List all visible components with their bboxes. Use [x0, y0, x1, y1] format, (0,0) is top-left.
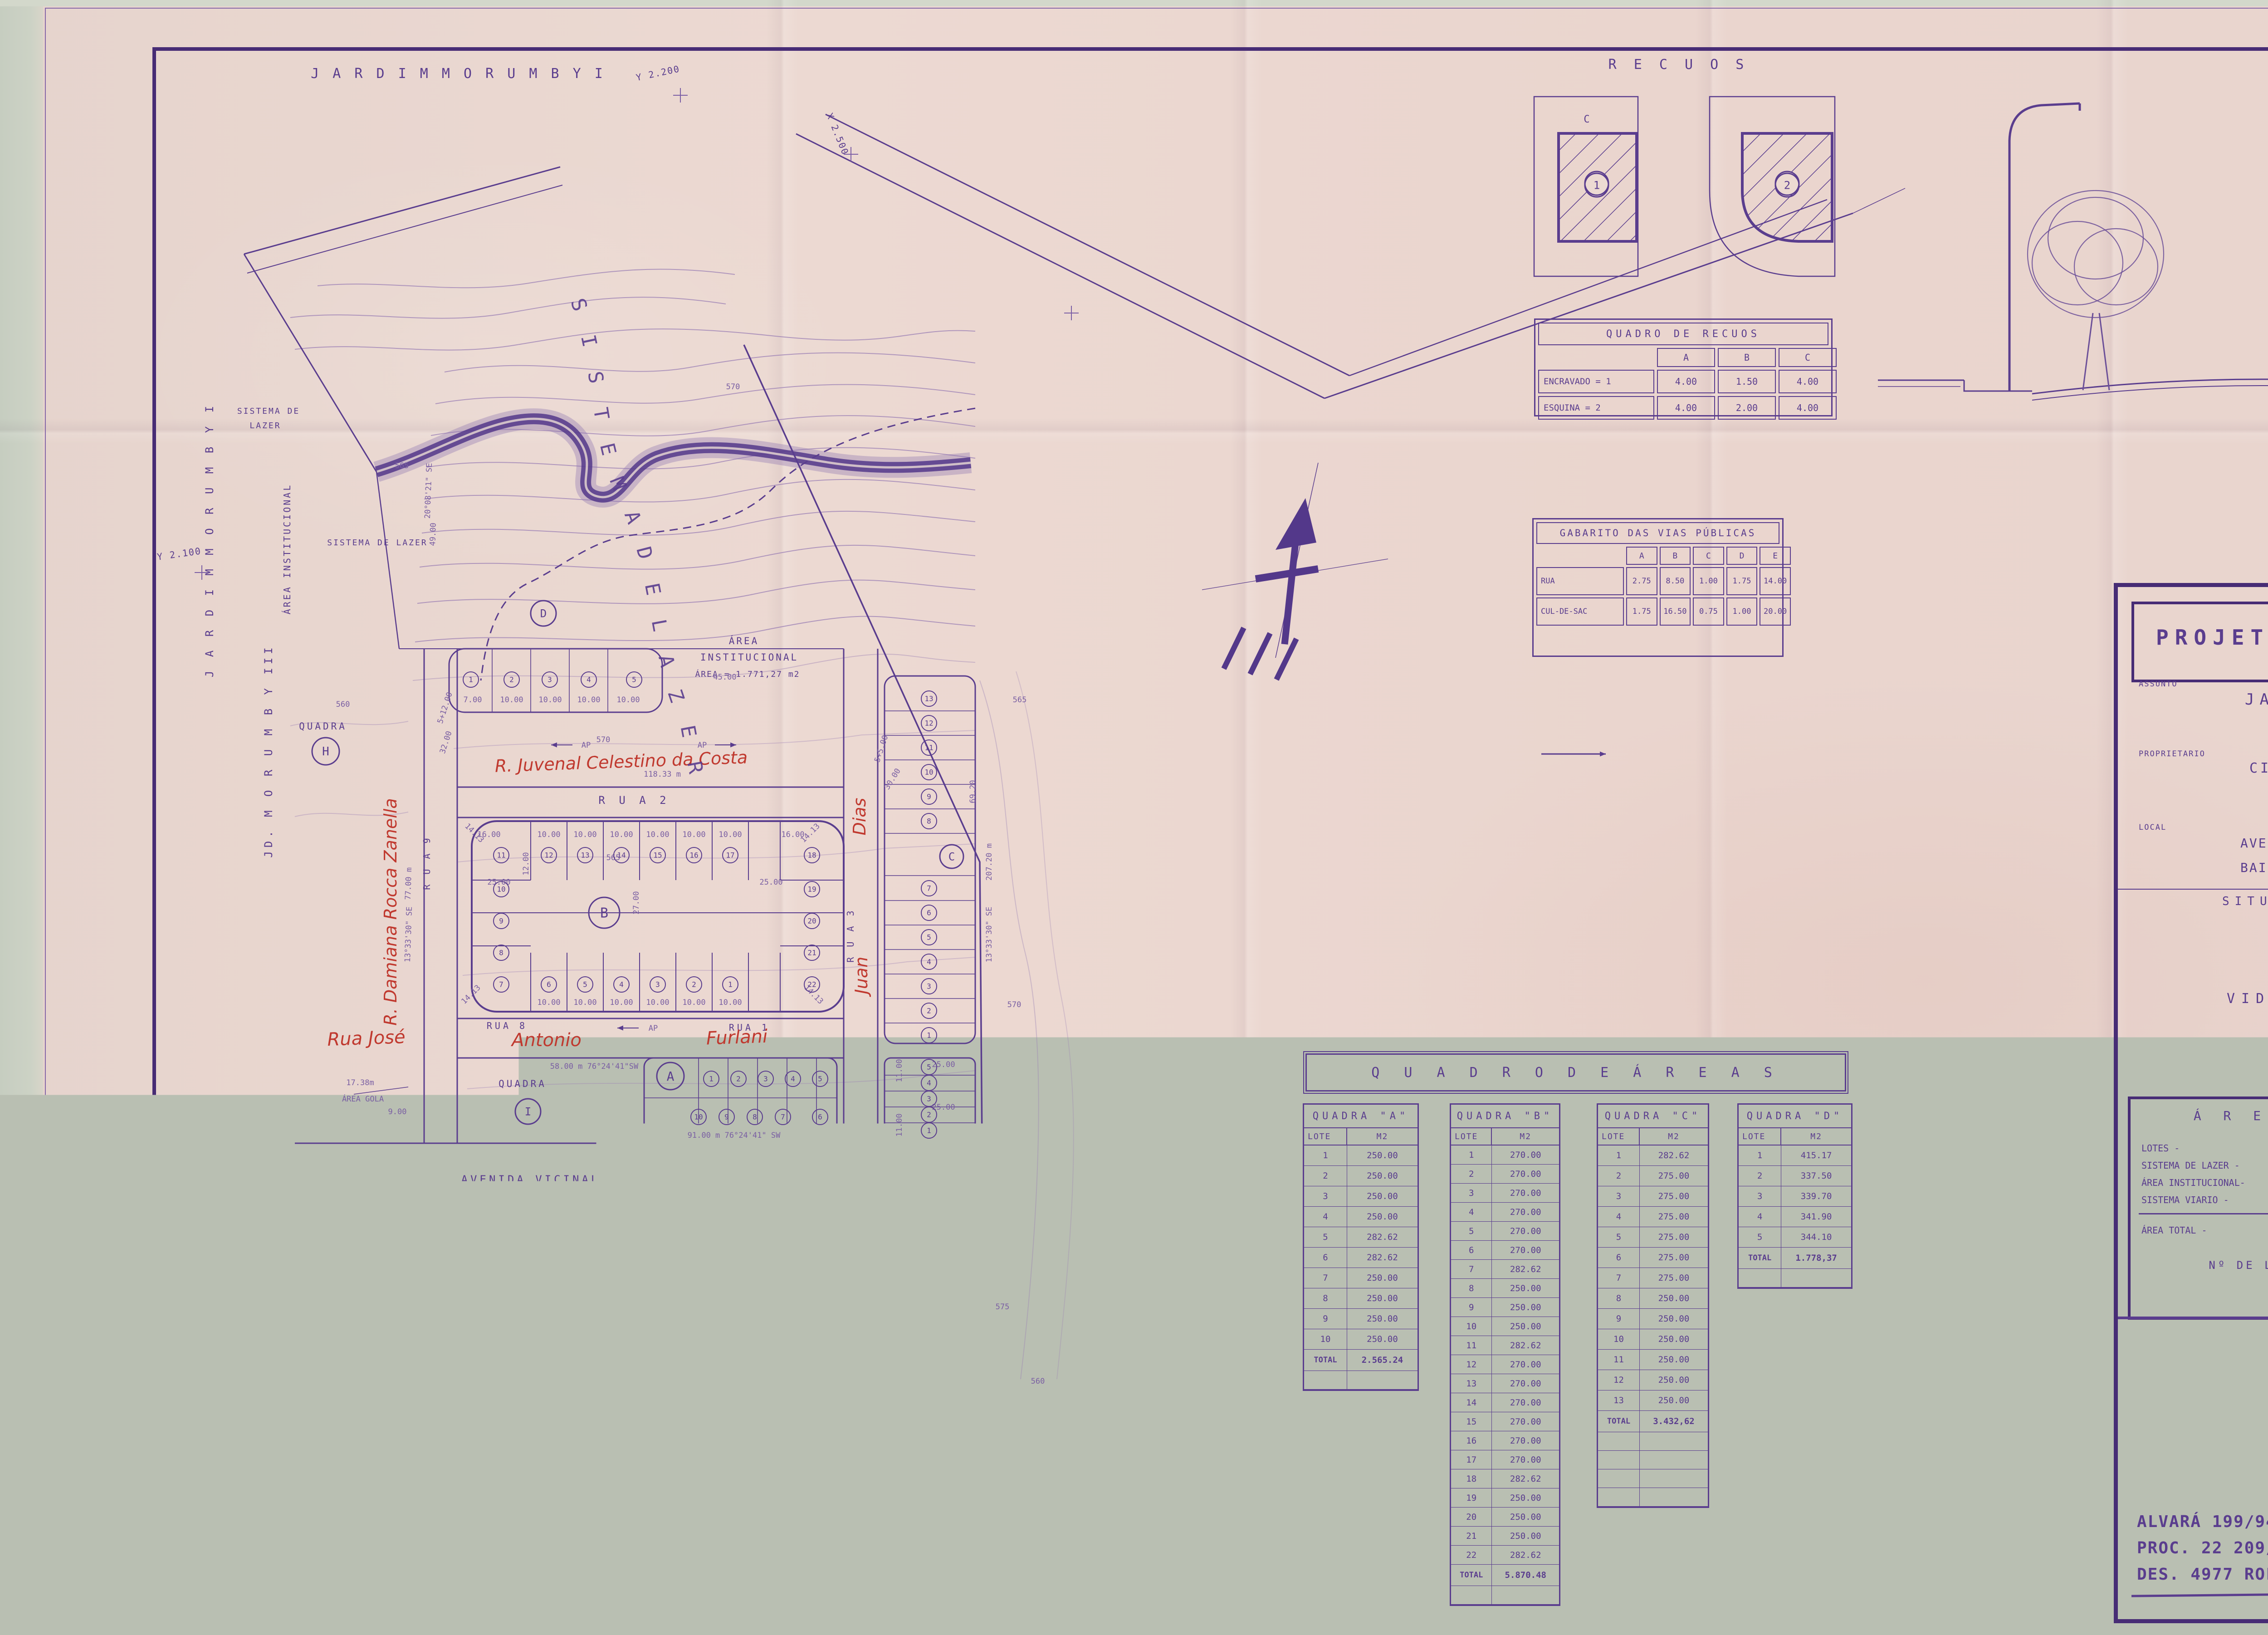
local-label: LOCAL	[2139, 823, 2166, 832]
recuos-row-label: ENCRAVADO = 1	[1538, 370, 1654, 393]
blank-row: ..	[1598, 1432, 1708, 1451]
dimension-label: 27.00	[632, 891, 641, 914]
lot-m2: 270.00	[1492, 1165, 1559, 1183]
handwritten-street-label: Dias	[850, 798, 870, 836]
dimension-label: 570	[1007, 1000, 1022, 1009]
ressumo-cell: A	[1816, 1384, 1884, 1421]
map-label: ÁREA	[729, 635, 759, 646]
lot-id: 3	[1451, 1184, 1492, 1202]
handwritten-street-label: R. Damiana Rocca Zanella	[381, 798, 401, 1025]
divider	[2118, 889, 2268, 890]
lot-number: 9	[724, 1113, 729, 1121]
alvara-line1: ALVARÁ 199/94 DUS	[2137, 1513, 2268, 1531]
arrow-head	[1600, 752, 1606, 757]
lot-id: 14	[1451, 1393, 1492, 1412]
lot-m2: 250.00	[1492, 1488, 1559, 1507]
dimension-label: 565	[1013, 695, 1027, 705]
bottom-rule	[2131, 1589, 2268, 1597]
gabarito-value: 1.75	[1726, 567, 1758, 595]
lot-id: 11	[1598, 1350, 1640, 1370]
lot-number: 11	[924, 744, 933, 752]
contour-lines	[290, 269, 1074, 1379]
dimension-label: 118.33 m	[644, 770, 681, 779]
situacao-value: VIDE AO LADO	[2227, 991, 2268, 1007]
lot-id: 6	[1451, 1241, 1492, 1259]
lot-number: 20	[807, 917, 816, 925]
map-label: RODOVIA CASTELO BRANCO	[1021, 1519, 1193, 1531]
lot-m2: 282.62	[1492, 1336, 1559, 1355]
lot-row: 16270.00	[1451, 1431, 1559, 1450]
lot-row: 5270.00	[1451, 1222, 1559, 1241]
recuos-col-header: B	[1718, 348, 1776, 367]
lot-number: 5	[583, 980, 587, 989]
map-label: B	[1714, 186, 1720, 198]
areas-total-row: ÁREA TOTAL - 34.930,80 m2 100,00%	[2131, 1222, 2268, 1239]
dimension-label: 10.00	[573, 830, 596, 839]
recuos-value: 4.00	[1657, 396, 1715, 420]
ressumo-cell: D	[1816, 1497, 1884, 1534]
lot-number: 7	[781, 1113, 785, 1121]
lot-number: 2	[927, 1007, 931, 1015]
dimension-label: 10.00	[682, 998, 705, 1007]
lot-number: 8	[927, 817, 931, 826]
lot-total-row: TOTAL3.432,62	[1598, 1411, 1708, 1432]
dimension-label: 21.33m	[617, 292, 645, 304]
lot-id: 8	[1598, 1288, 1640, 1308]
map-label: SISTEMA DE	[237, 406, 300, 416]
lot-number: 4	[587, 676, 591, 684]
dimension-label: 10.00	[719, 830, 742, 839]
ressumo-row: D1.778,375	[1816, 1497, 2068, 1534]
lot-number: 7	[927, 884, 931, 893]
lot-id: 13	[1451, 1374, 1492, 1393]
lot-table-head: LOTEM2	[1304, 1128, 1417, 1145]
lot-m2: 250.00	[1492, 1298, 1559, 1317]
dimension-label: 570	[726, 382, 740, 392]
dimension-label: 62°43'21"NW	[924, 362, 963, 408]
lot-number: 2	[927, 1111, 931, 1119]
dimension-label: 10.00	[538, 695, 562, 705]
lot-table-head: LOTEM2	[1598, 1128, 1708, 1145]
gabarito-table: GABARITO DAS VIAS PÚBLICASABCDERUA2.758.…	[1532, 518, 1784, 657]
lot-number: 14	[617, 851, 626, 860]
lot-number: 3	[763, 1075, 768, 1083]
lot-number: 1	[709, 1075, 714, 1083]
ressumo-cell: 22	[2002, 1421, 2068, 1459]
map-label: R E C U O S	[1608, 57, 1749, 73]
dimension-label: 7.00	[464, 695, 482, 705]
lot-row: 3275.00	[1598, 1186, 1708, 1207]
lot-number: 3	[655, 980, 660, 989]
lot-number: 11	[497, 851, 505, 860]
handwritten-street-label: Rua José	[327, 1027, 406, 1050]
dimension-label: 10.00	[719, 998, 742, 1007]
lot-number: 13	[581, 851, 589, 860]
lot-id: 10	[1598, 1329, 1640, 1349]
dimension-label: 69.20	[968, 780, 978, 803]
areas-divider	[2139, 1213, 2268, 1214]
dimension-label: 33.07m	[894, 317, 919, 345]
handwritten-street-label: R. Juvenal Celestino da Costa	[494, 747, 748, 776]
assunto-label: ASSUNTO	[2139, 680, 2178, 689]
lot-row: 8250.00	[1598, 1288, 1708, 1309]
handwritten-street-label: Juan	[851, 957, 871, 998]
ressumo-title: RESSUMO DE QUADRAS	[1816, 1325, 2068, 1354]
areas-rows: LOTES - 13.646,71 m2 39,07% SISTEMA DE L…	[2131, 1140, 2268, 1209]
lot-number: 21	[807, 949, 816, 957]
ressumo-row: A2.565,2410	[1816, 1384, 2068, 1421]
lot-id: 15	[1451, 1412, 1492, 1431]
lot-id: 17	[1451, 1450, 1492, 1469]
lot-number: 3	[927, 982, 931, 991]
map-label: PRESERVAÇÃO	[514, 636, 602, 666]
lot-total-row: TOTAL1.778,37	[1739, 1248, 1851, 1269]
gabarito-value: 1.00	[1693, 567, 1724, 595]
dimension-label: 11.00	[895, 1113, 904, 1136]
lot-row: 19250.00	[1451, 1488, 1559, 1508]
ressumo-cell: 5	[2002, 1497, 2068, 1534]
lot-m2: 282.62	[1492, 1546, 1559, 1564]
lot-m2: 250.00	[1492, 1508, 1559, 1526]
lot-m2: 344.10	[1781, 1227, 1851, 1247]
alvara-line3: DES. 4977 ROLO 64	[2137, 1565, 2268, 1584]
lot-m2: 250.00	[1640, 1329, 1708, 1349]
lot-row: 14270.00	[1451, 1393, 1559, 1412]
map-label: C	[1783, 114, 1789, 125]
dimension-label: 48.00m	[1324, 326, 1352, 349]
map-label: PERMANENTE	[822, 520, 903, 537]
blank-row: ..	[1304, 1371, 1417, 1390]
blank-row: ..	[1739, 1269, 1851, 1287]
lot-m2: 339.70	[1781, 1186, 1851, 1206]
map-label: SECÇÃO TRANSVERSAL DE RUA	[1957, 510, 2253, 526]
lot-row: 4341.90	[1739, 1207, 1851, 1227]
lot-number: 7	[499, 980, 503, 989]
dimension-label: 12.00	[522, 852, 531, 875]
areas-row-label: LOTES -	[2141, 1143, 2268, 1154]
lot-number: 9	[927, 793, 931, 801]
sistema-de-lazer-big-label: S I S T E M A D E L A Z E R	[566, 295, 709, 782]
lot-m2: 250.00	[1347, 1309, 1417, 1329]
map-label: Y 1.900	[1087, 1380, 1133, 1400]
lot-id: 2	[1739, 1166, 1781, 1186]
recuos-col-header: C	[1779, 348, 1837, 367]
lot-row: 13270.00	[1451, 1374, 1559, 1393]
lot-row: 9250.00	[1304, 1309, 1417, 1329]
gabarito-value: 0.75	[1693, 597, 1724, 626]
lot-id: 8	[1451, 1279, 1492, 1297]
ressumo-cell: B	[1816, 1421, 1884, 1459]
dimension-label: 10.00	[610, 830, 633, 839]
lot-row: 10250.00	[1304, 1329, 1417, 1350]
handwritten-street-label: Furlani	[706, 1026, 768, 1049]
lot-id: 9	[1304, 1309, 1347, 1329]
lot-m2: 270.00	[1492, 1145, 1559, 1164]
handwritten-street-label: Rua	[861, 1210, 880, 1240]
lot-row: 6275.00	[1598, 1248, 1708, 1268]
dimension-label: 49.00	[428, 523, 438, 546]
dimension-label: 5+12.00	[436, 691, 455, 724]
map-label: Y 2.100	[156, 545, 202, 562]
lot-number: 2	[692, 980, 696, 989]
lot-total-row: TOTAL2.565.24	[1304, 1350, 1417, 1371]
lot-id: 5	[1598, 1227, 1640, 1247]
gabarito-value: 16.50	[1660, 597, 1691, 626]
lot-number: 9	[499, 917, 503, 925]
ressumo-cell: ÁREAS M2	[1884, 1354, 2002, 1383]
lot-row: 9250.00	[1598, 1309, 1708, 1329]
gabarito-row-label: RUA	[1536, 567, 1624, 595]
map-label: RUA 12	[1486, 240, 1545, 284]
lot-number: 3	[927, 1095, 931, 1103]
lot-m2: 282.62	[1347, 1227, 1417, 1247]
lot-area-table: QUADRA "B"LOTEM21270.002270.003270.00427…	[1450, 1103, 1560, 1606]
sheet-title: PROJETO URBANISTICO	[2156, 625, 2268, 650]
lot-id: 8	[1304, 1288, 1347, 1308]
recuos-value: 4.00	[1779, 370, 1837, 393]
gabarito-col-header: D	[1726, 547, 1758, 565]
gabarito-value: 14.00	[1760, 567, 1791, 595]
lot-m2: 270.00	[1492, 1241, 1559, 1259]
map-label: B	[1539, 186, 1545, 198]
proprietario-value: CIA. IMOBILIARIA MORUMBY	[2249, 760, 2268, 776]
dimension-label: 58°39'52" SW	[1387, 297, 1439, 334]
lot-id: 2	[1451, 1165, 1492, 1183]
ressumo-cell: 1.778,37	[1884, 1497, 2002, 1534]
map-label: J A R D I M M O R U M B Y I	[203, 402, 216, 677]
map-label: X 24.00	[1047, 269, 1079, 313]
lot-id: 22	[1451, 1546, 1492, 1564]
lot-m2: 250.00	[1640, 1288, 1708, 1308]
lot-row: 5282.62	[1304, 1227, 1417, 1248]
quadra-letter: H	[322, 745, 329, 759]
north-arrow	[1202, 463, 1388, 680]
dimension-label: 16.00	[781, 830, 804, 839]
map-label: SOROCABA	[283, 1402, 334, 1411]
lot-number: 5	[927, 933, 931, 942]
tree-icon	[2028, 191, 2268, 390]
lamp-post-icon	[2009, 103, 2080, 391]
gabarito-value: 20.00	[1760, 597, 1791, 626]
lot-id: 5	[1451, 1222, 1492, 1240]
lot-m2: 275.00	[1640, 1227, 1708, 1247]
lot-id: 3	[1304, 1186, 1347, 1206]
situacao-label: SITUAÇÃO	[2222, 895, 2268, 908]
gabarito-value: 2.75	[1626, 567, 1657, 595]
quadro-de-recuos-table: QUADRO DE RECUOSABCENCRAVADO = 14.001.50…	[1534, 318, 1833, 416]
lot-number: 18	[807, 851, 816, 860]
lot-id: 9	[1598, 1309, 1640, 1329]
ressumo-row: C3.432,6213	[1816, 1459, 2068, 1497]
lot-number: 10	[497, 885, 505, 894]
lot-id: 1	[1739, 1145, 1781, 1165]
ressumo-cell: 3.432,62	[1884, 1459, 2002, 1496]
lot-row: 15270.00	[1451, 1412, 1559, 1431]
lot-id: 12	[1598, 1370, 1640, 1390]
dimension-label: 9.00	[388, 1107, 407, 1116]
ressumo-cell: TOTAL	[1816, 1534, 1884, 1573]
lot-id: 16	[1451, 1431, 1492, 1450]
ressumo-cell: QUADRA	[1816, 1354, 1884, 1383]
map-label: R U A 9	[421, 836, 432, 890]
title-header-box: PROJETO URBANISTICO FOLHA	[2131, 602, 2268, 682]
areas-row-label: SISTEMA VIARIO -	[2141, 1194, 2268, 1205]
lot-table-head: LOTEM2	[1739, 1128, 1851, 1145]
lot-id: 19	[1451, 1488, 1492, 1507]
dimension-label: 207.20 m	[985, 843, 994, 881]
lot-row: 1250.00	[1304, 1145, 1417, 1166]
tree-crown	[2074, 229, 2158, 305]
lot-area-table: QUADRA "C"LOTEM21282.622275.003275.00427…	[1597, 1103, 1709, 1508]
map-label: J A R D I M M O R U M B Y II	[742, 369, 926, 642]
gabarito-row-label: CUL-DE-SAC	[1536, 597, 1624, 626]
map-label: A	[1994, 432, 1999, 444]
lot-number: 17	[726, 851, 734, 860]
tree-crown	[2048, 197, 2143, 279]
lot-number: 1	[927, 1126, 931, 1135]
lot-m2: 275.00	[1640, 1166, 1708, 1186]
gabarito-value: 1.00	[1726, 597, 1758, 626]
lot-id: 6	[1598, 1248, 1640, 1268]
ressumo-total: TOTAL13.646,7150	[1816, 1534, 2068, 1574]
lot-number: 8	[499, 949, 503, 957]
lot-m2: 282.62	[1347, 1248, 1417, 1268]
areas-row: SISTEMA DE LAZER - 14.642,39 m2 41,92%	[2131, 1157, 2268, 1174]
dimension-label: 68°19'41"SW	[621, 274, 674, 289]
dimension-label: 10.00	[682, 830, 705, 839]
lot-row: 2275.00	[1598, 1166, 1708, 1186]
lot-m2: 250.00	[1347, 1329, 1417, 1349]
lot-number: 22	[807, 980, 816, 989]
lot-table-name: QUADRA "D"	[1739, 1105, 1851, 1128]
lot-row: 8250.00	[1304, 1288, 1417, 1309]
lot-number: 19	[807, 885, 816, 894]
lot-m2: 250.00	[1640, 1390, 1708, 1410]
lot-row: 4250.00	[1304, 1207, 1417, 1227]
areas-m2-title: Á R E A S M2	[2131, 1108, 2268, 1123]
lot-m2: 270.00	[1492, 1374, 1559, 1393]
lot-number: 6	[927, 909, 931, 917]
quadra-letter: C	[948, 850, 955, 863]
arrow-head	[245, 1404, 251, 1409]
lot-number: 4	[927, 958, 931, 966]
lot-row: 10250.00	[1598, 1329, 1708, 1350]
lot-id: 2	[1304, 1166, 1347, 1186]
lot-m2: 270.00	[1492, 1412, 1559, 1431]
lot-number: 5	[818, 1075, 822, 1083]
dimension-label: 560	[1031, 1377, 1045, 1386]
areas-row-label: ÁREA INSTITUCIONAL-	[2141, 1177, 2268, 1188]
dimension-label: 13°33'30" SE	[985, 907, 994, 963]
lot-row: 2337.50	[1739, 1166, 1851, 1186]
recuos-value: 4.00	[1779, 396, 1837, 420]
lot-id: 18	[1451, 1469, 1492, 1488]
lot-id: 4	[1451, 1203, 1492, 1221]
lot-row: 4270.00	[1451, 1203, 1559, 1222]
dimension-label: 570	[596, 735, 611, 744]
tree-crown	[2028, 191, 2164, 318]
ressumo-header: QUADRAÁREAS M2LOTES	[1816, 1354, 2068, 1384]
ressumo-cell: 2.565,24	[1884, 1384, 2002, 1421]
arrow-head	[1228, 1523, 1234, 1528]
lot-m2: 270.00	[1492, 1203, 1559, 1221]
ressumo-cell: 50	[2002, 1534, 2068, 1573]
lot-row: 3270.00	[1451, 1184, 1559, 1203]
tree-crown	[2032, 221, 2123, 305]
lot-m2: 341.90	[1781, 1207, 1851, 1227]
lot-id: 11	[1451, 1336, 1492, 1355]
lot-number: 1	[728, 980, 733, 989]
lot-row: 11282.62	[1451, 1336, 1559, 1355]
lot-m2: 282.62	[1492, 1469, 1559, 1488]
lot-id: 3	[1598, 1186, 1640, 1206]
lot-m2: 275.00	[1640, 1248, 1708, 1268]
lot-number: 8	[753, 1113, 757, 1121]
local-line2: BAIRRO BOA VISTA - SOROCABA/SP.	[2240, 860, 2268, 875]
street-cross-section	[1878, 103, 2268, 486]
dimension-label: AP	[649, 1024, 658, 1033]
ressumo-de-quadras-table: RESSUMO DE QUADRASQUADRAÁREAS M2LOTESA2.…	[1814, 1324, 2069, 1576]
gabarito-col-header: B	[1660, 547, 1691, 565]
lot-row: 11250.00	[1598, 1350, 1708, 1370]
blank-row: ..	[1598, 1469, 1708, 1488]
lot-row: 5275.00	[1598, 1227, 1708, 1248]
lot-id: 21	[1451, 1527, 1492, 1545]
lot-id: 1	[1598, 1145, 1640, 1165]
quadro-de-areas-header: Q U A D R O D E Á R E A S	[1305, 1053, 1846, 1092]
lot-row: 17270.00	[1451, 1450, 1559, 1469]
n-lotes: Nº DE LOTES : 50	[2131, 1259, 2268, 1272]
map-label: Y 2.200	[635, 63, 681, 83]
map-label: M	[1305, 476, 1312, 490]
lot-m2: 250.00	[1640, 1309, 1708, 1329]
recuos-value: 2.00	[1718, 396, 1776, 420]
dimension-label: 45.00	[713, 673, 736, 682]
quadro-de-areas-title: Q U A D R O D E Á R E A S	[1371, 1065, 1780, 1081]
lot-m2: 250.00	[1640, 1350, 1708, 1370]
lot-table-head: LOTEM2	[1451, 1128, 1559, 1145]
dimension-label: 10.00	[537, 998, 560, 1007]
map-label: A.C.R.T.S.	[1010, 470, 1021, 542]
blueprint-sheet: J A R D I M M O R U M B Y IRUA 3RUA 7RUA…	[0, 0, 2268, 1635]
quadra-letter: I	[525, 1105, 531, 1118]
lot-row: 1415.17	[1739, 1145, 1851, 1166]
handwritten-street-label: (Castelinho)	[980, 1402, 1079, 1424]
lot-row: 6270.00	[1451, 1241, 1559, 1260]
lot-m2: 250.00	[1347, 1207, 1417, 1227]
dimension-label: 560	[336, 700, 350, 709]
quadra-letter: D	[540, 607, 547, 620]
blank-row: ..	[1598, 1451, 1708, 1469]
lot-number: 4	[791, 1075, 795, 1083]
lot-id: 2	[1598, 1166, 1640, 1186]
lot-row: 12250.00	[1598, 1370, 1708, 1390]
lot-m2: 415.17	[1781, 1145, 1851, 1165]
local-line1: AVENIDA VICINAL ESQUERDA - ÁREA "5"	[2240, 836, 2268, 851]
quadra-letter: B	[600, 906, 608, 921]
lot-row: 1270.00	[1451, 1145, 1559, 1165]
dimension-label: 6.69m	[849, 284, 874, 303]
lot-number: 5	[632, 676, 636, 684]
lot-id: 1	[1304, 1145, 1347, 1165]
lot-id: 3	[1739, 1186, 1781, 1206]
title-block: PROJETO URBANISTICO FOLHA ASSUNTO JARDIM…	[2114, 583, 2268, 1623]
dimension-label: 10.00	[610, 998, 633, 1007]
dimension-label: 179.00 m	[421, 584, 431, 622]
assunto-value: JARDIM MORUMBY IV	[2245, 690, 2268, 709]
dimension-label: 10.00	[616, 695, 640, 705]
dimension-label: 5+5.00	[873, 734, 890, 764]
